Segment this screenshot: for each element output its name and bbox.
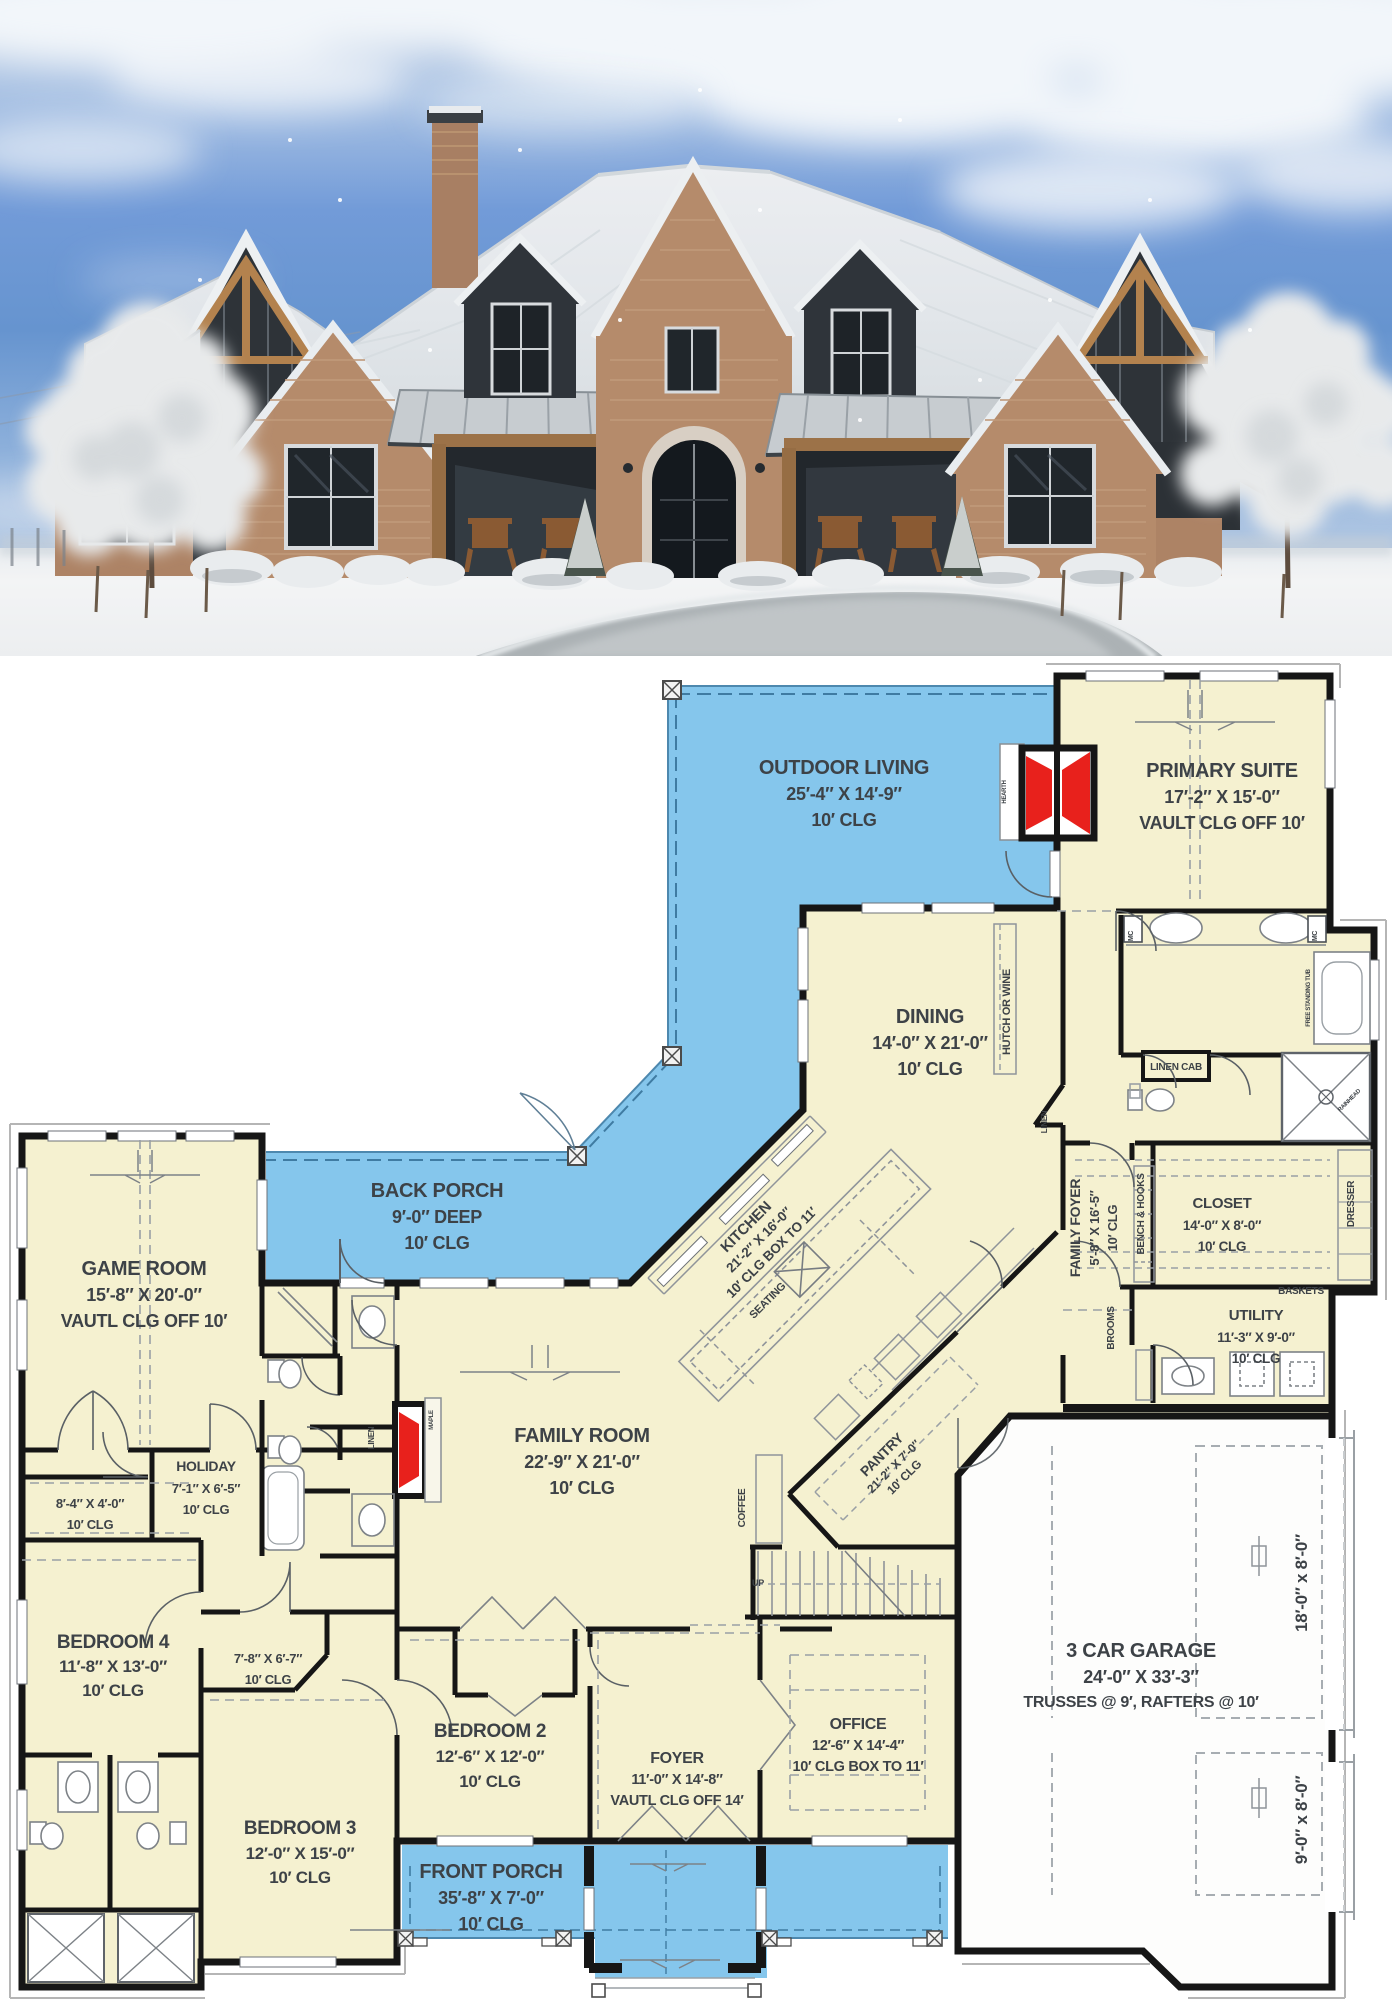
svg-text:10′ CLG: 10′ CLG [459,1772,521,1791]
svg-text:BASKETS: BASKETS [1278,1286,1324,1297]
svg-text:COFFEE: COFFEE [737,1488,748,1527]
svg-text:10′ CLG: 10′ CLG [811,810,876,830]
svg-text:DINING: DINING [896,1006,964,1028]
svg-text:FAMILY FOYER: FAMILY FOYER [1067,1179,1083,1278]
svg-text:CLOSET: CLOSET [1192,1195,1251,1212]
svg-text:18′-0″ x 8′-0″: 18′-0″ x 8′-0″ [1292,1534,1311,1632]
svg-text:HEARTH: HEARTH [1002,780,1008,803]
svg-text:DRESSER: DRESSER [1346,1180,1357,1227]
svg-text:10′ CLG: 10′ CLG [1198,1239,1246,1254]
svg-text:14′-0″ X 8′-0″: 14′-0″ X 8′-0″ [1183,1218,1262,1233]
svg-text:17′-2″ X 15′-0″: 17′-2″ X 15′-0″ [1164,787,1280,807]
svg-text:7′-1″ X 6′-5″: 7′-1″ X 6′-5″ [172,1481,240,1496]
svg-text:FREE STANDING TUB: FREE STANDING TUB [1306,968,1312,1026]
svg-text:VAULT CLG OFF 10′: VAULT CLG OFF 10′ [1139,813,1305,833]
svg-text:15′-8″ X 20′-0″: 15′-8″ X 20′-0″ [86,1285,202,1305]
svg-text:BEDROOM 3: BEDROOM 3 [244,1818,356,1839]
svg-text:10′ CLG: 10′ CLG [549,1478,614,1498]
svg-text:HOLIDAY: HOLIDAY [176,1458,237,1474]
svg-text:11′-3″ X 9′-0″: 11′-3″ X 9′-0″ [1217,1330,1295,1345]
svg-text:10′ CLG: 10′ CLG [269,1868,331,1887]
svg-text:MAPLE: MAPLE [429,1410,435,1430]
svg-text:BROOMS: BROOMS [1106,1306,1117,1350]
svg-text:10′ CLG: 10′ CLG [82,1681,144,1700]
svg-text:FOYER: FOYER [650,1750,704,1767]
svg-text:12′-0″ X 15′-0″: 12′-0″ X 15′-0″ [246,1844,355,1863]
svg-text:10′ CLG: 10′ CLG [897,1059,962,1079]
svg-text:OUTDOOR LIVING: OUTDOOR LIVING [759,757,929,779]
svg-text:10′ CLG: 10′ CLG [404,1233,469,1253]
svg-text:LINEN: LINEN [367,1426,376,1449]
svg-text:10′ CLG BOX TO 11′: 10′ CLG BOX TO 11′ [792,1759,924,1775]
svg-text:10′ CLG: 10′ CLG [1105,1205,1120,1252]
svg-text:7′-8″ X 6′-7″: 7′-8″ X 6′-7″ [234,1651,302,1666]
svg-text:GAME ROOM: GAME ROOM [81,1258,206,1280]
svg-text:14′-0″ X 21′-0″: 14′-0″ X 21′-0″ [872,1033,988,1053]
svg-text:10′ CLG: 10′ CLG [67,1517,114,1532]
svg-text:HUTCH OR WINE: HUTCH OR WINE [1001,969,1013,1055]
svg-text:10′ CLG: 10′ CLG [245,1672,292,1687]
svg-text:10′ CLG: 10′ CLG [1232,1351,1280,1366]
svg-text:10′ CLG: 10′ CLG [458,1914,523,1934]
svg-text:11′-0″ X 14′-8″: 11′-0″ X 14′-8″ [631,1772,723,1788]
svg-text:BACK PORCH: BACK PORCH [371,1180,504,1202]
svg-text:BENCH & HOOKS: BENCH & HOOKS [1136,1173,1147,1255]
svg-text:12′-6″ X 14′-4″: 12′-6″ X 14′-4″ [812,1738,904,1754]
svg-text:9′-0″ x 8′-0″: 9′-0″ x 8′-0″ [1292,1776,1311,1865]
svg-text:11′-8″ X 13′-0″: 11′-8″ X 13′-0″ [59,1657,167,1676]
svg-text:24′-0″ X 33′-3″: 24′-0″ X 33′-3″ [1083,1667,1199,1687]
svg-text:PRIMARY SUITE: PRIMARY SUITE [1146,760,1298,782]
svg-text:3 CAR GARAGE: 3 CAR GARAGE [1066,1640,1216,1662]
svg-text:LINEN CAB: LINEN CAB [1150,1062,1202,1073]
svg-text:UTILITY: UTILITY [1229,1307,1284,1324]
svg-text:LINEN: LINEN [1040,1110,1049,1133]
svg-text:BEDROOM 4: BEDROOM 4 [57,1632,170,1653]
svg-text:MC: MC [1128,931,1135,942]
svg-text:MC: MC [1312,931,1319,942]
svg-text:VAUTL CLG OFF 14′: VAUTL CLG OFF 14′ [610,1793,744,1809]
svg-text:UP: UP [752,1578,764,1588]
svg-text:9′-0″ DEEP: 9′-0″ DEEP [392,1207,482,1227]
svg-text:10′ CLG: 10′ CLG [183,1502,230,1517]
svg-text:8′-4″ X 4′-0″: 8′-4″ X 4′-0″ [56,1496,124,1511]
svg-text:FRONT PORCH: FRONT PORCH [419,1861,562,1883]
svg-text:BEDROOM 2: BEDROOM 2 [434,1721,546,1742]
svg-text:TRUSSES @ 9′, RAFTERS @ 10′: TRUSSES @ 9′, RAFTERS @ 10′ [1023,1694,1259,1711]
svg-text:25′-4″ X 14′-9″: 25′-4″ X 14′-9″ [786,784,902,804]
svg-text:22′-9″ X 21′-0″: 22′-9″ X 21′-0″ [524,1452,640,1472]
svg-text:OFFICE: OFFICE [830,1716,887,1733]
svg-text:5′-8″ X 16′-5″: 5′-8″ X 16′-5″ [1087,1190,1102,1265]
svg-text:12′-6″ X 12′-0″: 12′-6″ X 12′-0″ [436,1747,545,1766]
svg-text:VAUTL CLG OFF 10′: VAUTL CLG OFF 10′ [61,1311,228,1331]
svg-text:35′-8″ X 7′-0″: 35′-8″ X 7′-0″ [438,1888,544,1908]
svg-text:FAMILY ROOM: FAMILY ROOM [514,1425,650,1447]
